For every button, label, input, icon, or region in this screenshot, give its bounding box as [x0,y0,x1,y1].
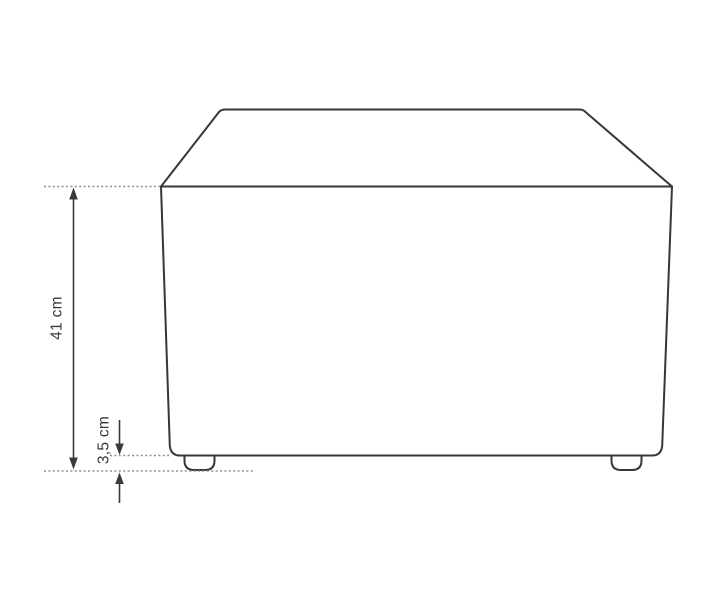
arrowhead-up-icon [69,188,78,200]
dimension-overall-height: 41 cm [49,188,78,470]
arrowhead-down-small-icon [115,444,124,456]
arrowhead-up-small-icon [115,473,124,485]
dimension-leg-height: 3,5 cm [96,416,124,503]
overall-height-label: 41 cm [49,296,66,340]
leg-height-label: 3,5 cm [96,416,113,464]
arrowhead-down-icon [69,458,78,470]
ottoman-right-foot [612,456,642,471]
extension-lines [44,187,254,472]
ottoman-top-face [161,110,672,187]
ottoman-front-face [161,187,672,456]
ottoman-left-foot [185,456,215,471]
dimension-diagram: 41 cm 3,5 cm [0,0,715,600]
ottoman-outline [161,110,672,471]
diagram-svg: 41 cm 3,5 cm [0,0,715,600]
